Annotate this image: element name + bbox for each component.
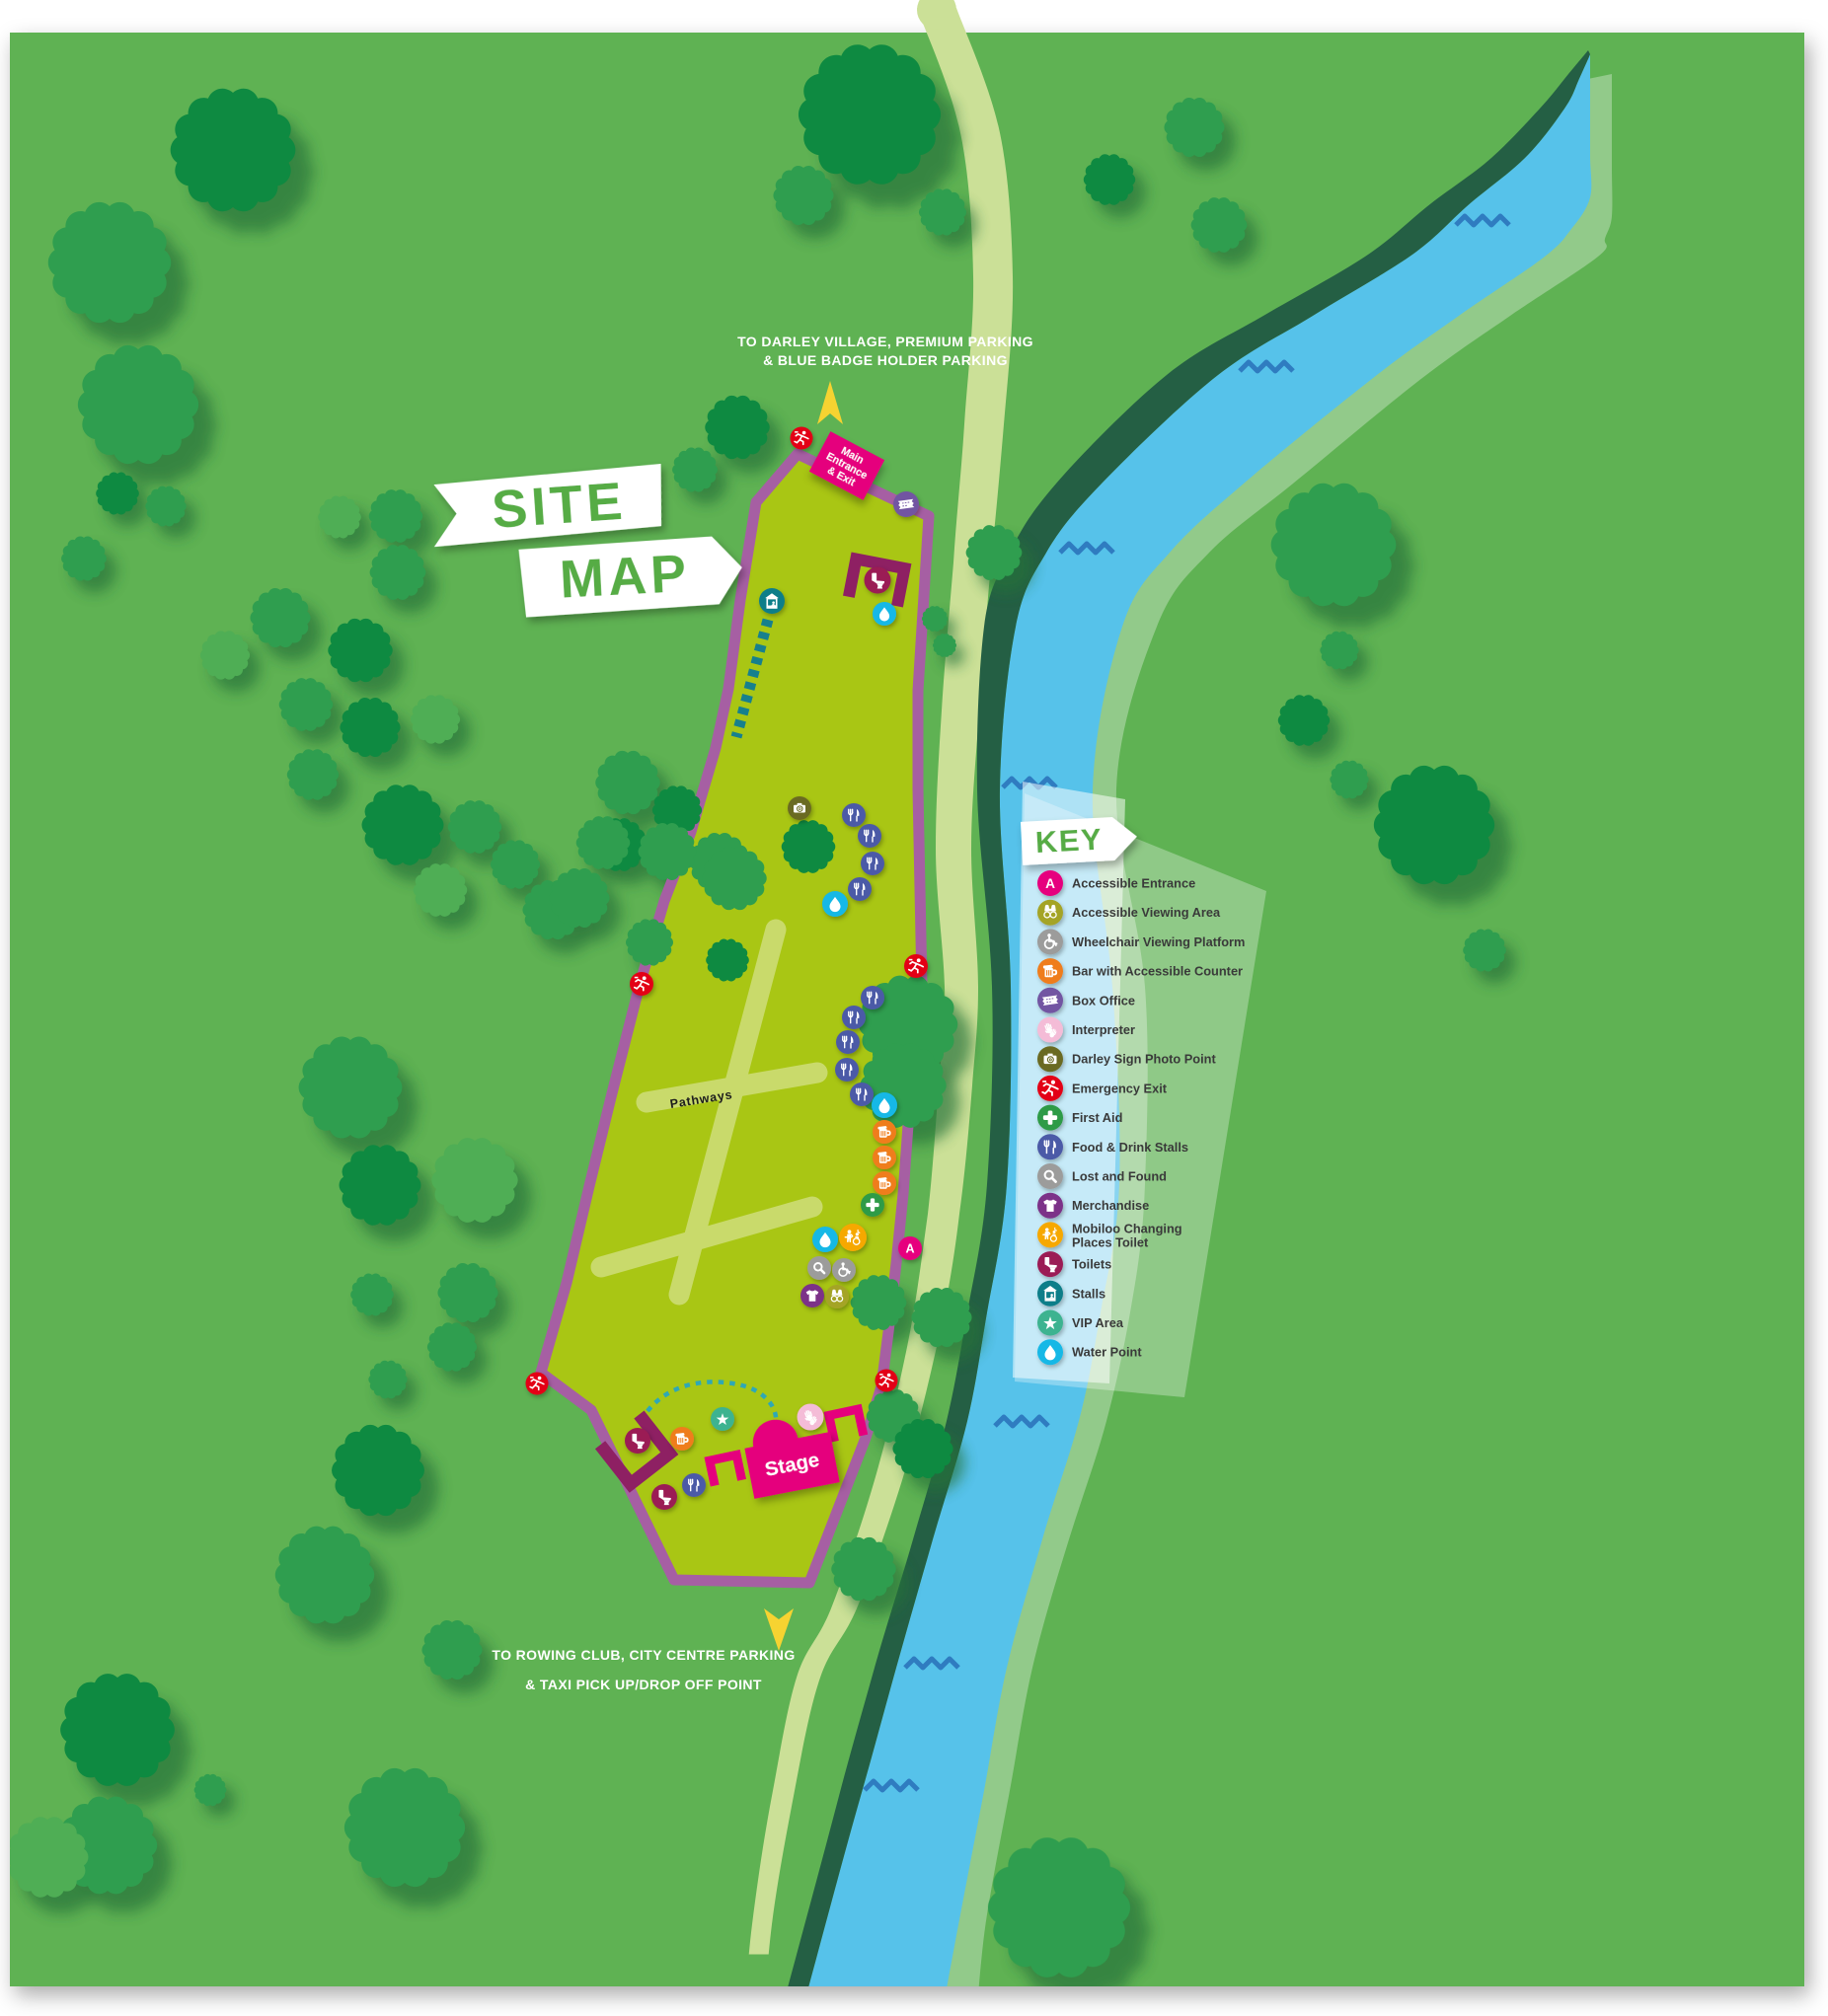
svg-text:KEY: KEY — [1034, 822, 1104, 860]
svg-text:VIP Area: VIP Area — [1072, 1315, 1124, 1330]
svg-text:& BLUE BADGE HOLDER PARKING: & BLUE BADGE HOLDER PARKING — [763, 352, 1008, 368]
svg-text:Toilets: Toilets — [1072, 1257, 1111, 1272]
svg-text:Emergency Exit: Emergency Exit — [1072, 1081, 1168, 1095]
svg-text:Places Toilet: Places Toilet — [1072, 1234, 1149, 1249]
svg-text:Water Point: Water Point — [1072, 1345, 1142, 1360]
svg-text:Box Office: Box Office — [1072, 993, 1135, 1008]
svg-text:Accessible Entrance: Accessible Entrance — [1072, 876, 1195, 891]
svg-text:TO DARLEY VILLAGE, PREMIUM PAR: TO DARLEY VILLAGE, PREMIUM PARKING — [737, 334, 1033, 349]
svg-text:Darley Sign Photo Point: Darley Sign Photo Point — [1072, 1052, 1216, 1067]
svg-text:Stalls: Stalls — [1072, 1286, 1105, 1301]
svg-text:Food & Drink Stalls: Food & Drink Stalls — [1072, 1140, 1188, 1155]
svg-text:Wheelchair Viewing Platform: Wheelchair Viewing Platform — [1072, 934, 1245, 949]
svg-text:Interpreter: Interpreter — [1072, 1022, 1135, 1037]
svg-text:& TAXI PICK UP/DROP OFF POINT: & TAXI PICK UP/DROP OFF POINT — [525, 1677, 762, 1692]
svg-text:Accessible Viewing Area: Accessible Viewing Area — [1072, 905, 1221, 920]
svg-text:SITE: SITE — [490, 472, 628, 540]
svg-text:First Aid: First Aid — [1072, 1110, 1122, 1125]
svg-text:MAP: MAP — [559, 544, 692, 610]
svg-text:Bar with Accessible Counter: Bar with Accessible Counter — [1072, 964, 1243, 979]
svg-text:Lost and Found: Lost and Found — [1072, 1169, 1167, 1184]
svg-text:TO ROWING CLUB, CITY CENTRE PA: TO ROWING CLUB, CITY CENTRE PARKING — [492, 1647, 795, 1663]
svg-text:Mobiloo Changing: Mobiloo Changing — [1072, 1221, 1182, 1235]
svg-text:Merchandise: Merchandise — [1072, 1198, 1149, 1213]
